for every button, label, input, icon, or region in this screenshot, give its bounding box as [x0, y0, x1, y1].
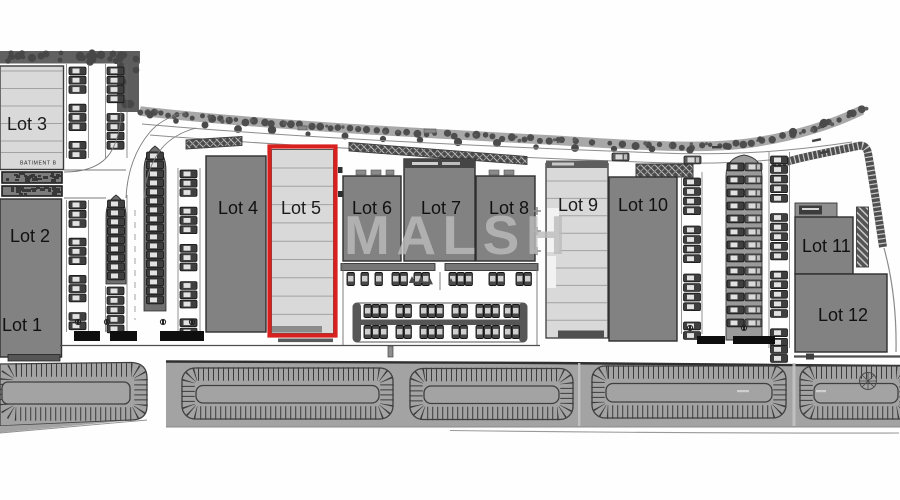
svg-text:Lot 4: Lot 4 — [218, 198, 258, 218]
svg-text:Lot 12: Lot 12 — [818, 305, 868, 325]
svg-text:Lot 2: Lot 2 — [10, 226, 50, 246]
svg-text:Lot 1: Lot 1 — [2, 315, 42, 335]
svg-text:Lot 10: Lot 10 — [618, 195, 668, 215]
svg-text:Lot 11: Lot 11 — [802, 236, 851, 256]
svg-text:MALSH: MALSH — [344, 204, 572, 266]
svg-text:BATIMENT B: BATIMENT B — [20, 161, 57, 167]
svg-text:Lot 3: Lot 3 — [7, 114, 47, 134]
svg-text:Lot 5: Lot 5 — [281, 198, 321, 218]
